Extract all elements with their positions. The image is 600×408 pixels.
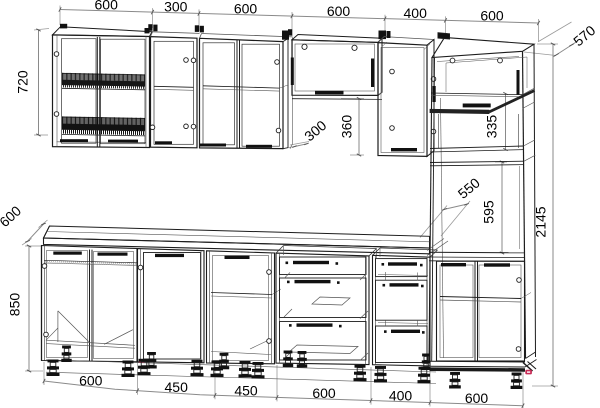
svg-text:450: 450 xyxy=(165,379,189,395)
svg-text:360: 360 xyxy=(339,115,355,139)
svg-text:600: 600 xyxy=(465,390,489,406)
svg-text:400: 400 xyxy=(404,5,428,21)
svg-text:300: 300 xyxy=(164,0,188,14)
svg-text:720: 720 xyxy=(15,70,31,94)
svg-text:600: 600 xyxy=(480,7,504,23)
svg-text:600: 600 xyxy=(327,3,351,19)
svg-text:600: 600 xyxy=(312,385,336,401)
svg-text:600: 600 xyxy=(79,372,103,388)
svg-text:600: 600 xyxy=(234,0,258,16)
svg-text:335: 335 xyxy=(484,115,500,139)
svg-text:600: 600 xyxy=(95,0,119,12)
svg-text:595: 595 xyxy=(481,200,497,224)
svg-text:850: 850 xyxy=(7,293,23,317)
svg-text:400: 400 xyxy=(389,388,413,404)
svg-text:450: 450 xyxy=(234,382,258,398)
